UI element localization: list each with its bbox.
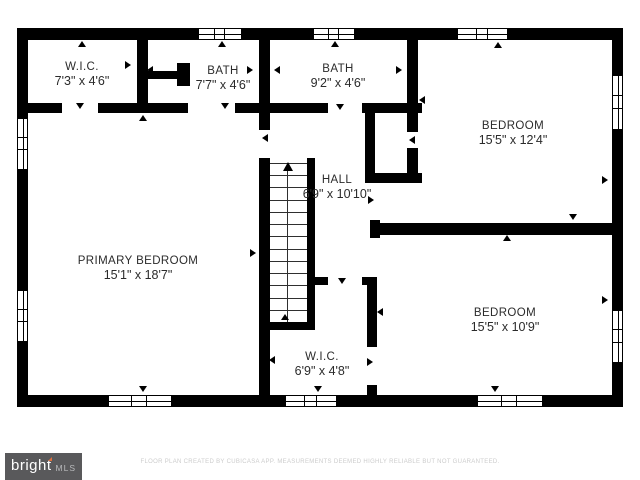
- dimension-arrow-right-icon: [368, 196, 374, 204]
- dimension-arrow-down-icon: [569, 214, 577, 220]
- room-name: HALL: [303, 173, 372, 187]
- room-name: W.I.C.: [55, 60, 110, 74]
- room-label-primary-bedroom: PRIMARY BEDROOM15'1" x 18'7": [78, 254, 199, 283]
- dimension-arrow-right-icon: [602, 296, 608, 304]
- room-name: BEDROOM: [479, 119, 548, 133]
- window: [17, 290, 28, 342]
- stair-tread: [270, 236, 307, 237]
- room-name: PRIMARY BEDROOM: [78, 254, 199, 268]
- window-glass-line: [618, 311, 619, 362]
- dimension-arrow-left-icon: [269, 356, 275, 364]
- dimension-arrow-down-icon: [338, 278, 346, 284]
- stair-tread: [270, 212, 307, 213]
- wall: [407, 40, 418, 132]
- window-glass-line: [458, 34, 507, 35]
- stair-tread: [270, 175, 307, 176]
- window: [198, 28, 242, 40]
- room-dimensions: 15'5" x 12'4": [479, 133, 548, 148]
- room-dimensions: 15'1" x 18'7": [78, 268, 199, 283]
- wall: [28, 103, 62, 113]
- room-label-bedroom-top-right: BEDROOM15'5" x 12'4": [479, 119, 548, 148]
- stair-tread: [270, 310, 307, 311]
- dimension-arrow-down-icon: [336, 104, 344, 110]
- dimension-arrow-left-icon: [377, 308, 383, 316]
- wall: [235, 103, 270, 113]
- window-glass-line: [109, 401, 171, 402]
- dimension-arrow-up-icon: [139, 115, 147, 121]
- window-glass-line: [199, 34, 241, 35]
- wall: [259, 322, 315, 330]
- room-name: BEDROOM: [471, 306, 540, 320]
- dimension-arrow-down-icon: [221, 103, 229, 109]
- wall: [177, 63, 190, 86]
- dimension-arrow-up-icon: [503, 235, 511, 241]
- dimension-arrow-right-icon: [250, 249, 256, 257]
- room-label-wic-top-left: W.I.C.7'3" x 4'6": [55, 60, 110, 89]
- stair-tread: [270, 285, 307, 286]
- dimension-arrow-up-icon: [78, 41, 86, 47]
- dimension-arrow-down-icon: [139, 386, 147, 392]
- room-dimensions: 9'2" x 4'6": [311, 76, 366, 91]
- wall: [259, 40, 270, 130]
- room-dimensions: 6'9" x 4'8": [295, 364, 350, 379]
- dimension-arrow-right-icon: [125, 61, 131, 69]
- stair-tread: [270, 224, 307, 225]
- wall: [365, 103, 375, 183]
- dimension-arrow-left-icon: [262, 134, 268, 142]
- dimension-arrow-down-icon: [76, 103, 84, 109]
- dimension-arrow-up-icon: [331, 41, 339, 47]
- wall: [370, 220, 380, 238]
- logo-brand-text: bright: [11, 457, 52, 474]
- window: [285, 395, 337, 407]
- stair-tread: [270, 298, 307, 299]
- dimension-arrow-left-icon: [20, 249, 26, 257]
- window-glass-line: [23, 119, 24, 169]
- dimension-arrow-down-icon: [491, 386, 499, 392]
- wall: [98, 103, 188, 113]
- wall: [367, 385, 377, 397]
- room-label-bath-left: BATH7'7" x 4'6": [196, 64, 251, 93]
- dimension-arrow-left-icon: [147, 66, 153, 74]
- window: [612, 310, 623, 363]
- dimension-arrow-up-icon: [281, 314, 289, 320]
- window: [17, 118, 28, 170]
- room-label-hall: HALL6'9" x 10'10": [303, 173, 372, 202]
- wall: [370, 223, 613, 235]
- window: [457, 28, 508, 40]
- stair-tread: [270, 261, 307, 262]
- dimension-arrow-left-icon: [409, 136, 415, 144]
- logo-accent-mark-icon: [48, 457, 52, 461]
- room-dimensions: 7'3" x 4'6": [55, 74, 110, 89]
- dimension-arrow-left-icon: [419, 96, 425, 104]
- room-name: BATH: [311, 62, 366, 76]
- dimension-arrow-right-icon: [396, 66, 402, 74]
- room-label-bedroom-bottom-right: BEDROOM15'5" x 10'9": [471, 306, 540, 335]
- dimension-arrow-up-icon: [218, 41, 226, 47]
- dimension-arrow-right-icon: [247, 66, 253, 74]
- wall: [17, 28, 28, 407]
- dimension-arrow-left-icon: [19, 61, 25, 69]
- dimension-arrow-right-icon: [367, 358, 373, 366]
- room-label-bath-middle: BATH9'2" x 4'6": [311, 62, 366, 91]
- wall: [315, 277, 328, 285]
- window: [313, 28, 355, 40]
- dimension-arrow-down-icon: [314, 386, 322, 392]
- window: [612, 75, 623, 130]
- window: [477, 395, 543, 407]
- window-glass-line: [286, 401, 336, 402]
- window-glass-line: [618, 76, 619, 129]
- footer-disclaimer: FLOOR PLAN CREATED BY CUBICASA APP. MEAS…: [140, 459, 499, 465]
- window-glass-line: [314, 34, 354, 35]
- window: [108, 395, 172, 407]
- stair-tread: [270, 187, 307, 188]
- stair-center-line: [287, 168, 288, 322]
- dimension-arrow-right-icon: [602, 176, 608, 184]
- room-dimensions: 6'9" x 10'10": [303, 187, 372, 202]
- dimension-arrow-up-icon: [494, 42, 502, 48]
- window-glass-line: [23, 291, 24, 341]
- stair-tread: [270, 200, 307, 201]
- bright-mls-logo: bright MLS: [5, 453, 82, 480]
- room-label-wic-bottom: W.I.C.6'9" x 4'8": [295, 350, 350, 379]
- stair-tread: [270, 249, 307, 250]
- stair-tread: [270, 273, 307, 274]
- window-glass-line: [478, 401, 542, 402]
- dimension-arrow-left-icon: [274, 66, 280, 74]
- room-name: W.I.C.: [295, 350, 350, 364]
- wall: [270, 103, 328, 113]
- room-dimensions: 7'7" x 4'6": [196, 78, 251, 93]
- floor-plan-canvas: W.I.C.7'3" x 4'6"BATH7'7" x 4'6"BATH9'2"…: [0, 0, 640, 480]
- logo-suffix-text: MLS: [56, 463, 76, 473]
- wall: [407, 148, 418, 183]
- stairs-up-arrow-icon: [283, 162, 293, 171]
- room-name: BATH: [196, 64, 251, 78]
- room-dimensions: 15'5" x 10'9": [471, 320, 540, 335]
- wall: [367, 277, 377, 347]
